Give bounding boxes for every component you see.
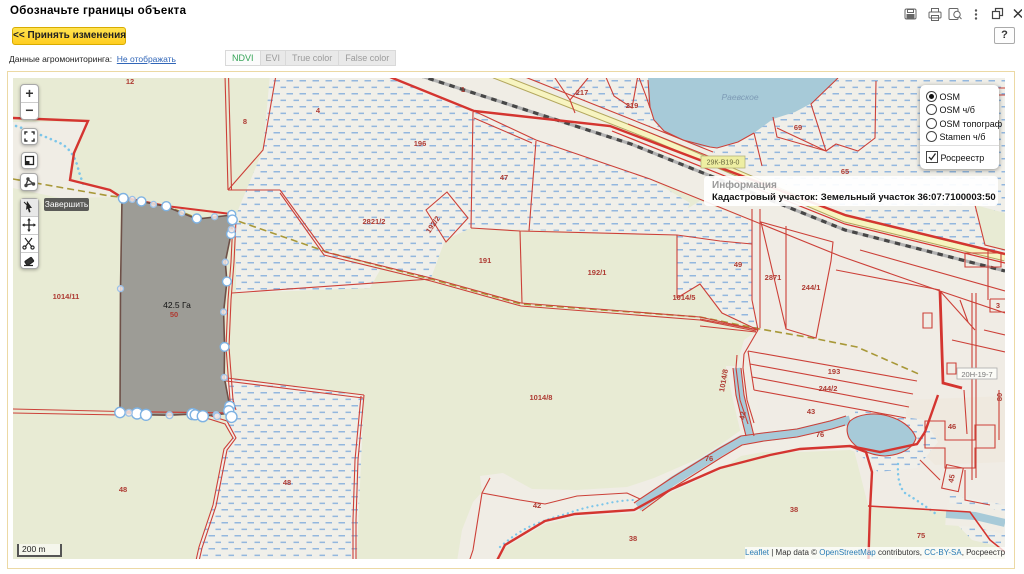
svg-text:244/2: 244/2: [819, 384, 838, 393]
svg-text:42: 42: [533, 501, 541, 510]
svg-text:42: 42: [737, 411, 747, 421]
svg-text:192/1: 192/1: [588, 268, 607, 277]
svg-text:76: 76: [816, 430, 824, 439]
svg-text:65: 65: [841, 167, 849, 176]
svg-text:50: 50: [170, 310, 178, 319]
svg-text:1: 1: [461, 85, 465, 94]
svg-text:3: 3: [996, 301, 1000, 310]
svg-text:20Н-19-7: 20Н-19-7: [961, 370, 992, 379]
svg-text:75: 75: [917, 531, 925, 540]
svg-text:1014/8: 1014/8: [530, 393, 553, 402]
svg-text:43: 43: [807, 407, 815, 416]
svg-text:38: 38: [790, 505, 798, 514]
svg-text:217: 217: [576, 88, 589, 97]
svg-text:47: 47: [500, 173, 508, 182]
svg-text:2821/2: 2821/2: [363, 217, 386, 226]
svg-text:12: 12: [126, 78, 134, 86]
svg-text:29К-В19-0: 29К-В19-0: [707, 160, 740, 167]
svg-text:80: 80: [995, 393, 1004, 401]
svg-text:2871: 2871: [765, 273, 782, 282]
svg-text:38: 38: [629, 534, 637, 543]
svg-text:42.5 Га: 42.5 Га: [163, 300, 191, 310]
svg-text:49: 49: [734, 260, 742, 269]
svg-text:1014/11: 1014/11: [53, 292, 80, 301]
svg-text:244/1: 244/1: [802, 283, 821, 292]
svg-text:69: 69: [794, 123, 802, 132]
svg-text:219: 219: [626, 101, 639, 110]
svg-text:76: 76: [705, 454, 713, 463]
svg-text:1014/5: 1014/5: [673, 293, 696, 302]
svg-text:196: 196: [414, 139, 427, 148]
svg-text:193: 193: [828, 367, 841, 376]
svg-text:46: 46: [948, 422, 956, 431]
svg-text:48: 48: [283, 478, 291, 487]
svg-text:48: 48: [119, 485, 127, 494]
svg-text:Раевское: Раевское: [721, 92, 758, 102]
svg-text:8: 8: [243, 117, 247, 126]
svg-text:191: 191: [479, 256, 492, 265]
